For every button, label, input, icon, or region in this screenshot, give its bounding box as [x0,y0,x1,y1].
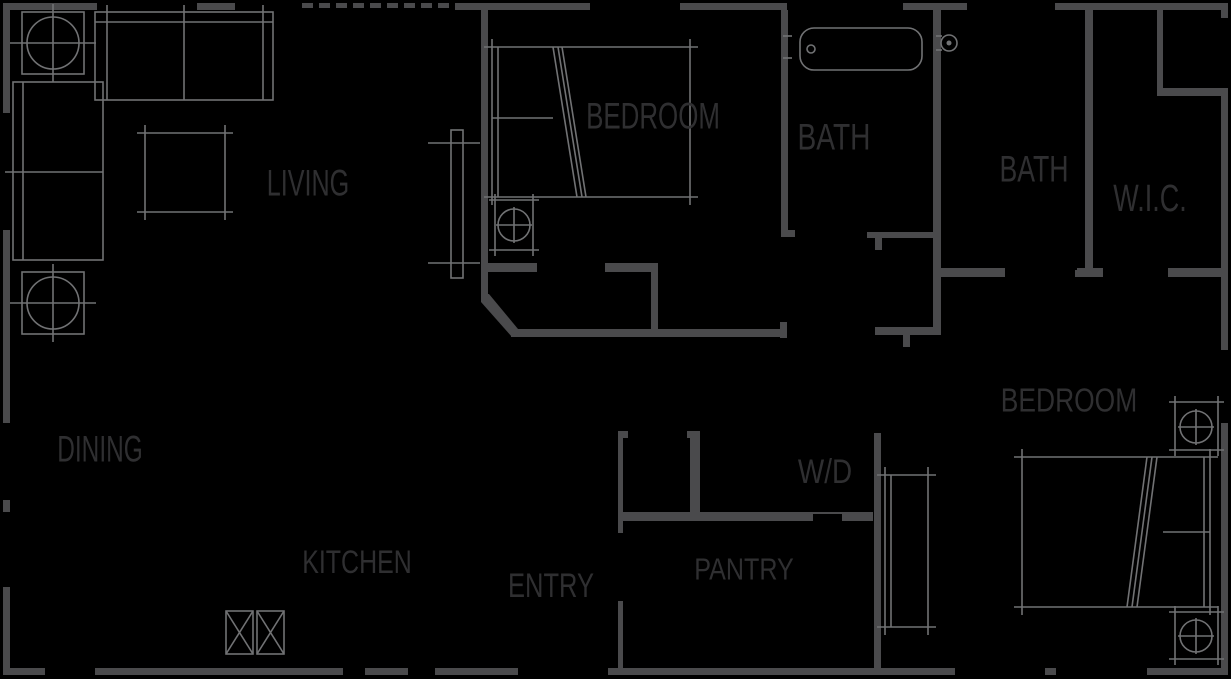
wall [781,230,795,237]
wall [680,3,787,10]
wall [1221,88,1228,350]
nightstand [1169,396,1224,456]
room-label-living: LIVING [267,165,350,202]
wall [3,3,97,10]
room-label-wd: W/D [798,455,852,489]
wall [3,230,10,423]
wall [1168,268,1222,277]
room-label-wic: W.I.C. [1113,180,1186,218]
wall [3,587,10,675]
wall [1157,88,1222,96]
bed [1014,449,1218,615]
wall [903,335,910,347]
wall [1085,10,1093,270]
room-label-bath-2: BATH [999,151,1068,188]
wall [623,512,813,521]
room-label-dining: DINING [57,431,142,468]
wall [781,10,788,237]
room-label-kitchen: KITCHEN [302,546,412,578]
wall [455,3,590,10]
wall [365,668,408,675]
wall [435,668,518,675]
wall [197,3,235,10]
wall [842,512,873,521]
wall [1075,270,1100,277]
round-table [10,4,96,82]
room-label-pantry: PANTRY [694,554,794,585]
wall [3,500,10,512]
wall [651,263,658,330]
wall [1055,3,1228,10]
sofa [95,5,273,100]
room-label-bedroom-2: BEDROOM [1001,384,1137,417]
round-table [10,264,96,342]
wall [874,433,881,670]
floor-plan: LIVING BEDROOM BATH BATH W.I.C. DINING B… [0,0,1231,679]
wall [481,263,537,272]
wall [933,10,941,335]
wall [867,232,935,238]
room-label-bath-1: BATH [798,119,871,156]
wall [511,329,787,337]
bathtub [783,28,922,70]
sofa [5,82,103,260]
wall [875,327,933,335]
wall [618,431,623,533]
wall [933,268,1005,277]
wall [875,238,882,250]
wall [1221,423,1228,675]
room-label-entry: ENTRY [508,569,594,603]
nightstand [489,194,539,256]
wall [618,431,628,438]
coffee-table [137,125,233,220]
closet-door-line [813,512,842,514]
wall [1157,10,1163,92]
wall [605,263,658,272]
wall [690,431,700,521]
wall [1045,668,1056,675]
wall [1147,668,1228,675]
dresser [877,467,936,635]
wall [481,10,488,302]
wall [95,668,343,675]
wall [3,668,45,675]
nightstand [1169,606,1224,665]
wall [3,3,10,113]
stove [226,611,284,654]
wall [618,601,623,670]
wall [608,668,955,675]
console-table [428,130,480,278]
room-label-bedroom-1: BEDROOM [586,98,720,135]
wall [903,3,967,10]
wall [1221,3,1228,18]
